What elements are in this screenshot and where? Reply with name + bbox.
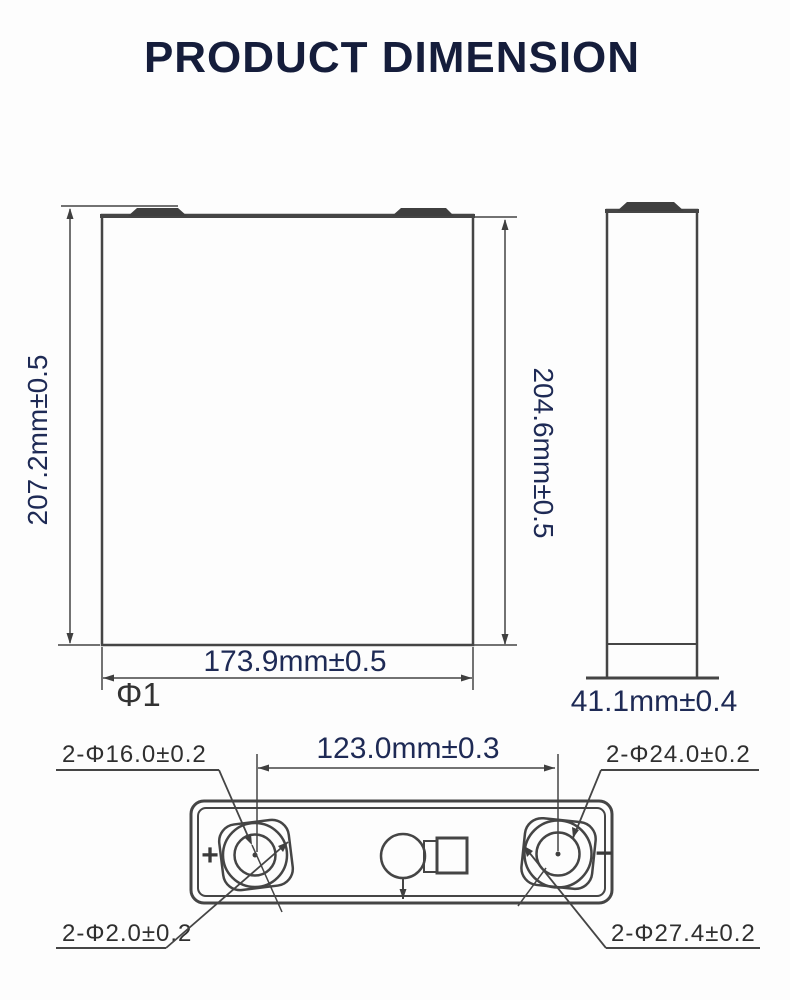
vent-square (437, 838, 467, 873)
leader-top-right: 2-Φ24.0±0.2 (572, 741, 759, 838)
minus-icon: − (595, 837, 613, 870)
label-positive-pad-diameter: 2-Φ16.0±0.2 (62, 741, 207, 768)
side-terminal-bump (617, 202, 684, 211)
terminal-bump-right (392, 208, 454, 216)
arrowhead-up (502, 219, 509, 230)
arrowhead-left (258, 765, 269, 772)
top-view: + − 123.0mm±0.3 2-Φ1 (56, 732, 760, 948)
cell-body-outline (102, 215, 473, 645)
vent-circle (381, 834, 425, 878)
technical-drawing: PRODUCT DIMENSION 207.2mm±0.5 204.6mm±0.… (0, 0, 790, 1000)
terminal-pitch-value: 123.0mm±0.3 (316, 732, 499, 765)
arrowhead-down (502, 634, 509, 645)
page-title: PRODUCT DIMENSION (144, 33, 640, 82)
dim-width: 173.9mm±0.5 Φ1 (102, 645, 473, 713)
plus-icon: + (201, 839, 219, 872)
terminal-bump-left (128, 208, 187, 216)
label-negative-pad-diameter: 2-Φ24.0±0.2 (606, 741, 751, 768)
arrowhead-right (544, 765, 555, 772)
front-view: 207.2mm±0.5 204.6mm±0.5 173.9mm±0.5 Φ1 (22, 206, 559, 713)
dim-overall-height: 207.2mm±0.5 (22, 206, 178, 645)
arrowhead-down (400, 889, 407, 899)
vent-group (381, 834, 467, 899)
width-value: 173.9mm±0.5 (203, 645, 386, 678)
positive-terminal: + (201, 818, 295, 892)
arrowhead-up (67, 208, 74, 219)
overall-height-value: 207.2mm±0.5 (22, 354, 53, 525)
side-body-outline (607, 210, 697, 678)
thickness-value: 41.1mm±0.4 (571, 685, 738, 718)
side-view: 41.1mm±0.4 (571, 202, 738, 718)
product-dimension-page: PRODUCT DIMENSION 207.2mm±0.5 204.6mm±0.… (0, 0, 790, 1000)
negative-terminal-center (556, 852, 561, 857)
label-negative-base-diameter: 2-Φ27.4±0.2 (611, 920, 756, 947)
arrowhead-right (461, 675, 472, 682)
arrowhead-down (67, 633, 74, 644)
dim-body-height: 204.6mm±0.5 (473, 217, 559, 645)
body-height-value: 204.6mm±0.5 (528, 367, 559, 538)
leader-line (573, 770, 601, 838)
negative-terminal: − (520, 817, 613, 891)
arrowhead-left (103, 675, 114, 682)
flatness-label: Φ1 (116, 676, 161, 713)
